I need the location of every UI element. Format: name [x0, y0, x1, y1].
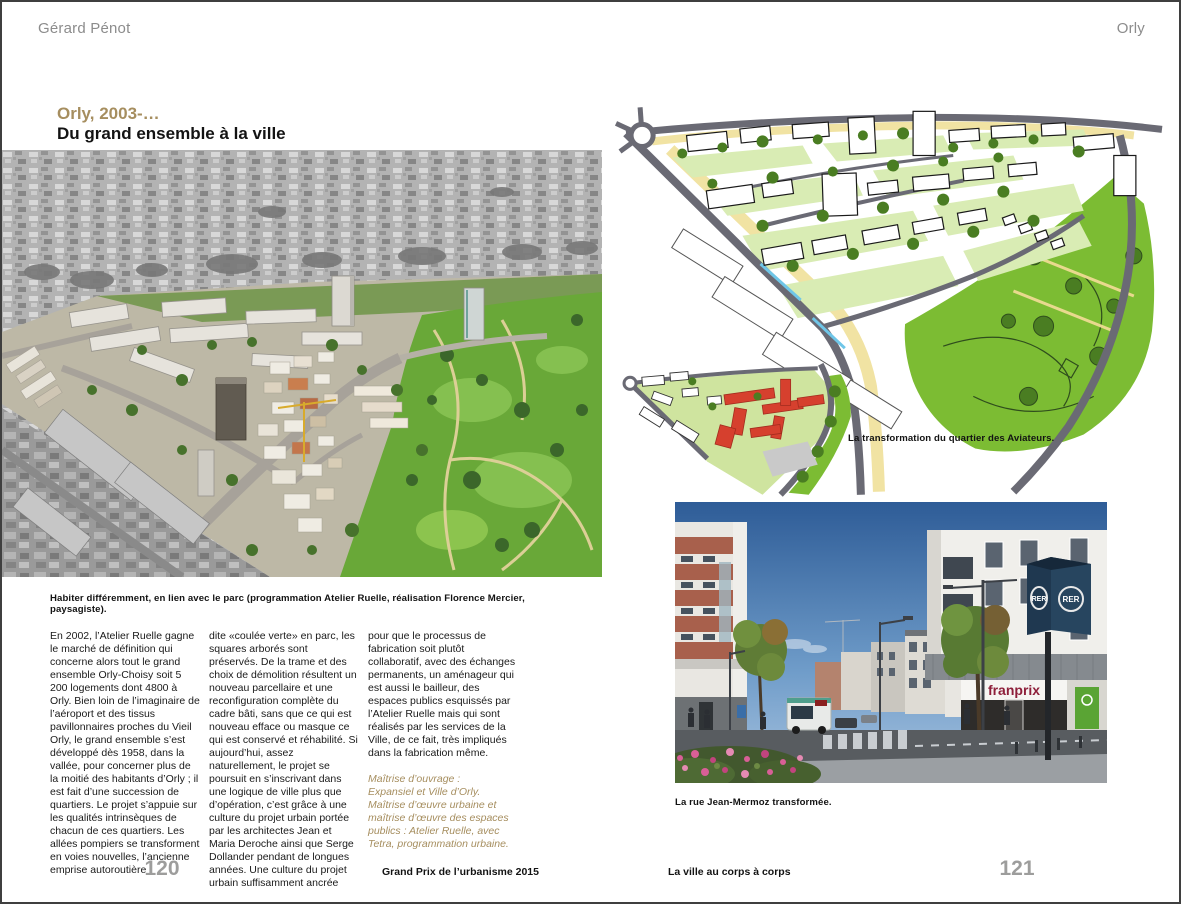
street-photo-graphic: franprix: [675, 502, 1107, 783]
running-head-author: Gérard Pénot: [38, 20, 130, 37]
shop-sign-text: franprix: [988, 682, 1040, 698]
project-credits: Maîtrise d’ouvrage : Expansiel et Ville …: [368, 773, 518, 851]
page-number-right: 121: [987, 857, 1047, 881]
footer-section-title: La ville au corps à corps: [668, 866, 791, 878]
aerial-photo: [2, 150, 602, 577]
aerial-photo-graphic: [2, 150, 602, 577]
illustration-caption: La transformation du quartier des Aviate…: [848, 433, 1054, 444]
street-photo-caption: La rue Jean-Mermoz transformée.: [675, 797, 832, 808]
chapter-title-dates: Orly, 2003-…: [57, 104, 286, 124]
inset-diagram: [624, 364, 851, 494]
body-column-3: pour que le processus de fabrication soi…: [368, 630, 518, 890]
page-number-left: 120: [132, 857, 192, 881]
body-column-1: En 2002, l’Atelier Ruelle gagne le march…: [50, 630, 200, 890]
body-text: En 2002, l’Atelier Ruelle gagne le march…: [50, 630, 520, 890]
body-column-3-text: pour que le processus de fabrication soi…: [368, 630, 515, 759]
footer-book-title: Grand Prix de l’urbanisme 2015: [382, 866, 539, 878]
aerial-photo-caption: Habiter différemment, en lien avec le pa…: [50, 593, 580, 615]
rer-sign-text-right: RER: [1063, 595, 1080, 604]
chapter-title-block: Orly, 2003-… Du grand ensemble à la vill…: [57, 104, 286, 144]
roundabout: [616, 107, 653, 151]
green-poster: [1075, 687, 1099, 729]
running-head-chapter: Orly: [1117, 20, 1145, 37]
body-column-2: dite «coulée verte» en parc, les squares…: [209, 630, 359, 890]
book-spread: Gérard Pénot Orly Orly, 2003-… Du grand …: [0, 0, 1181, 904]
bus: [787, 698, 831, 734]
chapter-title-main: Du grand ensemble à la ville: [57, 124, 286, 144]
rer-sign-text-left: RER: [1032, 596, 1047, 603]
street-photo: franprix: [675, 502, 1107, 783]
